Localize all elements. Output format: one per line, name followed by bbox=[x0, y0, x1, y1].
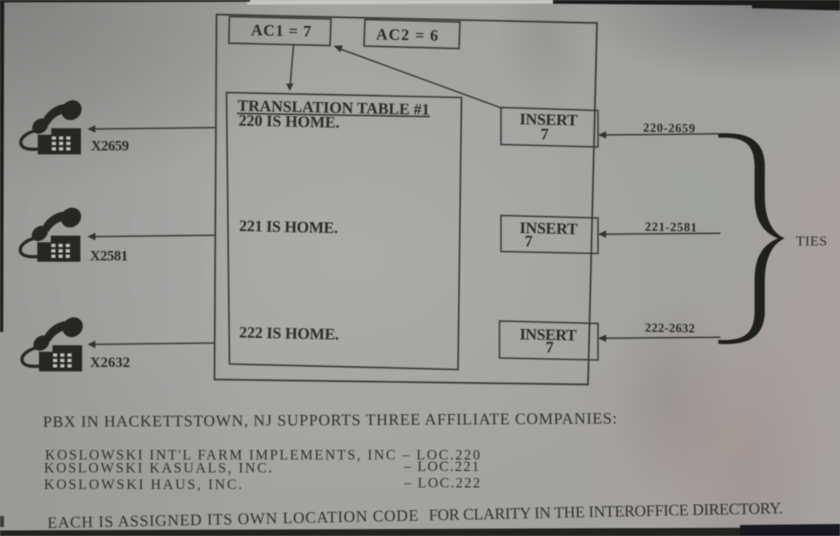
svg-text:TIES: TIES bbox=[796, 235, 827, 250]
svg-text:AC1 = 7: AC1 = 7 bbox=[251, 22, 311, 40]
svg-text:KOSLOWSKI HAUS, INC.: KOSLOWSKI HAUS, INC. bbox=[44, 477, 242, 493]
svg-text:221 IS HOME.: 221 IS HOME. bbox=[239, 218, 338, 237]
svg-text:AC2 = 6: AC2 = 6 bbox=[376, 27, 438, 45]
svg-text:– LOC.222: – LOC.222 bbox=[403, 476, 480, 492]
svg-text:7: 7 bbox=[524, 233, 532, 250]
svg-text:222-2632: 222-2632 bbox=[645, 321, 695, 336]
svg-text:PBX IN HACKETTSTOWN, NJ SUPPOR: PBX IN HACKETTSTOWN, NJ SUPPORTS THREE A… bbox=[43, 410, 617, 431]
svg-text:X2632: X2632 bbox=[90, 355, 130, 371]
svg-text:7: 7 bbox=[545, 339, 553, 356]
svg-text:KOSLOWSKI KASUALS, INC.: KOSLOWSKI KASUALS, INC. bbox=[44, 461, 272, 477]
svg-text:7: 7 bbox=[540, 126, 548, 143]
svg-text:– LOC.221: – LOC.221 bbox=[403, 459, 479, 475]
svg-text:220 IS HOME.: 220 IS HOME. bbox=[238, 113, 339, 132]
svg-text:X2659: X2659 bbox=[91, 139, 129, 155]
svg-text:220-2659: 220-2659 bbox=[643, 121, 695, 136]
svg-text:EACH IS ASSIGNED ITS OWN LOCAT: EACH IS ASSIGNED ITS OWN LOCATION CODE bbox=[47, 508, 418, 532]
svg-text:X2581: X2581 bbox=[90, 249, 128, 265]
svg-text:221-2581: 221-2581 bbox=[645, 220, 697, 235]
svg-text:222 IS HOME.: 222 IS HOME. bbox=[239, 325, 339, 344]
svg-text:FOR CLARITY IN THE INTEROFFICE: FOR CLARITY IN THE INTEROFFICE DIRECTORY… bbox=[429, 500, 783, 524]
